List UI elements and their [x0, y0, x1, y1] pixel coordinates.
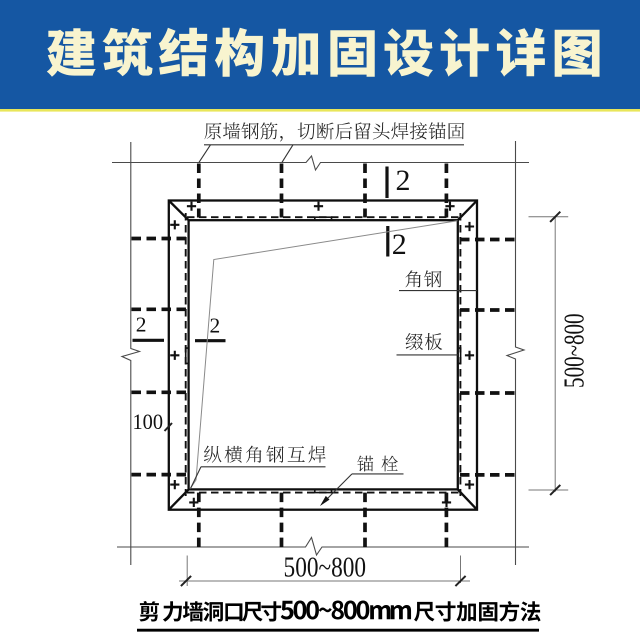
svg-text:2: 2	[136, 313, 147, 337]
svg-text:2: 2	[210, 314, 221, 338]
svg-text:100: 100	[133, 409, 164, 434]
svg-text:500~800: 500~800	[284, 551, 367, 583]
svg-text:500~800: 500~800	[559, 313, 591, 388]
svg-text:2: 2	[392, 228, 407, 261]
svg-text:2: 2	[396, 164, 411, 197]
